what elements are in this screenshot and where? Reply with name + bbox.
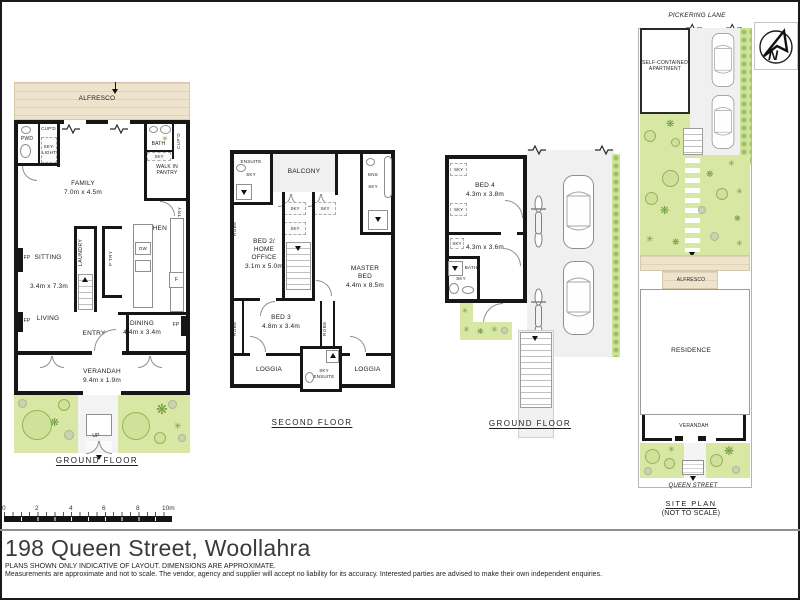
wall <box>242 301 244 355</box>
room-label-site-verandah: VERANDAH <box>652 423 736 429</box>
dishwasher-label: DW <box>135 246 151 252</box>
sky-label: SKY <box>451 276 471 282</box>
tree-icon <box>154 432 166 444</box>
room-label-verandah: VERANDAH <box>52 368 152 376</box>
plant-icon: ✳ <box>736 188 743 196</box>
wall <box>642 438 672 441</box>
wall <box>716 438 746 441</box>
shrub-icon <box>644 467 652 475</box>
toilet-icon <box>20 144 31 158</box>
scale-tick-10m: 10m <box>162 505 175 512</box>
tree-icon <box>22 410 52 440</box>
basin-icon <box>149 126 158 133</box>
scale-tick-8: 8 <box>136 505 140 512</box>
room-label-apartment: SELF-CONTAINED APARTMENT <box>641 60 689 73</box>
plant-icon: ❋ <box>50 418 59 429</box>
street-label-queen-street: QUEEN STREET <box>643 483 743 491</box>
scale-bar <box>4 516 172 522</box>
verandah-post <box>675 436 683 441</box>
property-address: 198 Queen Street, Woollahra <box>5 535 311 562</box>
wall <box>74 226 97 229</box>
tree-icon <box>664 458 675 469</box>
toilet-icon <box>160 125 171 134</box>
wall <box>144 198 190 201</box>
shower-drain-arrow <box>241 190 247 195</box>
floorplan-sheet: ALFRESCO PWD CUP'D SKY- LIGHT ✳ BATH SKY… <box>0 0 800 600</box>
room-dim-bed3: 4.8m x 3.4m <box>246 323 316 331</box>
room-label-sitting: SITTING <box>18 254 78 262</box>
room-label-bed4: BED 4 <box>449 182 521 190</box>
plant-icon: ❋ <box>734 215 741 223</box>
plant-icon: ❋ <box>156 402 168 416</box>
fridge-label: F <box>169 277 184 283</box>
plan-title-ground-floor-right: GROUND FLOOR <box>460 419 600 428</box>
wall <box>57 123 60 167</box>
room-label-residence: RESIDENCE <box>651 347 731 355</box>
compass-north-label: N <box>768 47 779 63</box>
plant-icon: ✳ <box>491 326 498 334</box>
room-dim-dining: 4.4m x 3.4m <box>112 329 172 337</box>
wall <box>360 232 395 235</box>
room-label-balcony: BALCONY <box>273 168 335 176</box>
tree-icon <box>671 138 680 147</box>
sky-box: SKY <box>450 163 467 176</box>
wall <box>233 202 273 205</box>
shower-drain-arrow <box>452 266 458 271</box>
room-label-alfresco: ALFRESCO <box>47 95 147 103</box>
toilet-icon <box>449 283 459 294</box>
wall <box>360 154 363 235</box>
divider-line <box>0 529 800 531</box>
plant-icon: ❋ <box>724 445 734 457</box>
break-line-icon <box>62 124 80 134</box>
room-label-master-bed: MASTER BED <box>333 265 397 281</box>
wall <box>102 295 122 298</box>
entry-arrow <box>690 476 696 481</box>
tree-icon <box>122 412 150 440</box>
room-dim-family: 7.0m x 4.5m <box>33 189 133 197</box>
sky-box: SKY <box>450 203 467 216</box>
plan-second-floor: BALCONY ENSUITE SKY ENS SKY SKY SKY SKY <box>230 150 398 435</box>
plant-icon: ✳ <box>646 235 654 244</box>
stairs <box>520 332 552 408</box>
shrub-icon <box>178 434 186 442</box>
tree-icon <box>716 188 728 200</box>
plant-icon: ✳ <box>736 240 743 248</box>
room-label-bed2: BED 2/ HOME OFFICE <box>232 238 296 262</box>
sky-label: SKY <box>290 226 299 231</box>
cooktop-icon <box>135 260 151 272</box>
tree-icon <box>710 454 723 467</box>
motorcycle-icon <box>530 195 547 248</box>
disclaimer-line-1: PLANS SHOWN ONLY INDICATIVE OF LAYOUT. D… <box>5 563 276 570</box>
wall-opening <box>501 232 517 235</box>
room-label-robe: ROBE <box>232 314 241 344</box>
tree-icon <box>645 192 658 205</box>
sky-label: SKY <box>454 207 463 212</box>
shrub-icon <box>18 399 27 408</box>
basin-icon <box>21 126 31 134</box>
stairs-down-arrow <box>532 336 538 341</box>
plant-icon: ❋ <box>706 170 714 179</box>
room-label-bath: BATH <box>463 265 479 271</box>
room-label-ptry-mid: P'TRY <box>108 240 117 276</box>
room-label-cupd-right: CUP'D <box>176 128 186 154</box>
tree-icon <box>58 399 70 411</box>
sky-label: SKY <box>154 154 163 159</box>
wall <box>335 154 338 195</box>
room-label-pwd: PWD <box>16 136 38 142</box>
break-line-icon <box>595 145 613 155</box>
shrub-icon <box>64 430 74 440</box>
basin-icon <box>236 164 246 172</box>
skylight-label: SKY- LIGHT <box>42 144 56 155</box>
compass-icon: N <box>755 23 797 69</box>
room-label-cupd: CUP'D <box>40 126 57 132</box>
plant-icon: ❋ <box>660 206 669 217</box>
room-label-loggia: LOGGIA <box>340 366 395 374</box>
shrub-icon <box>710 232 719 241</box>
room-dim-verandah: 9.4m x 1.9m <box>52 377 152 385</box>
plant-icon: ❋ <box>672 238 680 247</box>
bathtub-icon <box>384 156 392 198</box>
sky-label: SKY <box>361 184 385 190</box>
wall <box>172 123 174 159</box>
entry-marker-arrow <box>112 89 118 94</box>
site-plan: PICKERING LANE SELF-CONTAINED APARTMENT … <box>638 10 756 525</box>
room-label-ens: ENS <box>361 172 385 178</box>
wall <box>94 226 97 312</box>
wall <box>144 123 147 201</box>
car-icon <box>562 260 595 336</box>
scale-tick-2: 2 <box>35 505 39 512</box>
wall <box>102 226 122 229</box>
plan-title-ground-floor-left: GROUND FLOOR <box>27 456 167 465</box>
basin-icon <box>462 286 474 294</box>
fireplace-label: FP <box>169 322 183 328</box>
shrub-icon <box>698 206 706 214</box>
plant-icon: ✳ <box>668 446 675 454</box>
car-icon <box>711 94 735 150</box>
room-label-loggia: LOGGIA <box>238 366 300 374</box>
room-label-bed3: BED 3 <box>246 314 316 322</box>
car-icon <box>711 32 735 88</box>
room-label-robe: ROBE <box>322 314 332 344</box>
street-label-pickering-lane: PICKERING LANE <box>642 12 752 20</box>
shower-arrow <box>330 353 336 358</box>
stairs-up-arrow <box>82 277 88 282</box>
plan-ground-floor-left: ALFRESCO PWD CUP'D SKY- LIGHT ✳ BATH SKY… <box>14 82 190 474</box>
tree-icon <box>662 170 679 187</box>
plant-icon: ✳ <box>728 160 735 168</box>
hedge-strip <box>740 28 751 165</box>
plant-icon: ❋ <box>666 120 674 130</box>
verandah-post <box>698 436 706 441</box>
plant-icon: ✳ <box>463 326 470 334</box>
basin-icon <box>366 158 375 166</box>
entry-steps <box>682 460 704 475</box>
plant-icon: ✳ <box>462 308 468 315</box>
toilet-icon <box>305 372 314 383</box>
car-icon <box>562 174 595 250</box>
disclaimer-line-2: Measurements are approximate and not to … <box>5 571 602 578</box>
wall <box>270 154 273 205</box>
sky-label: SKY <box>454 167 463 172</box>
break-line-icon <box>528 145 546 155</box>
room-dim-master-bed: 4.4m x 8.5m <box>333 282 397 290</box>
break-line-icon <box>110 124 128 134</box>
up-label: UP <box>80 433 112 439</box>
wall <box>312 192 315 298</box>
wall <box>102 226 105 298</box>
room-label-walk-in-pantry: WALK IN PANTRY <box>145 164 189 177</box>
wall <box>74 226 77 312</box>
sky-label: SKY <box>320 206 329 211</box>
plan-title-site-plan: SITE PLAN <box>641 499 741 508</box>
room-label-family: FAMILY <box>33 180 133 188</box>
room-dim-sitting: 3.4m x 7.3m <box>18 283 80 291</box>
door-arc <box>483 303 503 323</box>
room-label-site-alfresco: ALFRESCO <box>651 277 731 283</box>
wall-opening <box>350 353 366 356</box>
wall <box>447 256 480 259</box>
room-label-laundry: LAUNDRY <box>78 232 88 272</box>
plan-title-second-floor: SECOND FLOOR <box>242 418 382 427</box>
room-label-dining: DINING <box>112 320 172 328</box>
sky-label: SKY <box>290 206 299 211</box>
room-label-living: LIVING <box>18 315 78 323</box>
room-dim-bed2: 3.1m x 5.0m <box>232 263 296 271</box>
tree-icon <box>645 449 660 464</box>
tree-icon <box>644 130 656 142</box>
wall-opening <box>250 353 266 356</box>
sky-box: SKY <box>284 222 306 235</box>
scale-tick-6: 6 <box>102 505 106 512</box>
plant-icon: ❋ <box>477 328 484 336</box>
sky-label: SKY <box>232 172 270 178</box>
plan-ground-floor-right: SKY BED 4 4.3m x 3.8m SKY SKY 4.3m x 3.6… <box>443 148 623 438</box>
shower-drain-arrow <box>375 217 381 222</box>
plan-subtitle-not-to-scale: (NOT TO SCALE) <box>641 510 741 519</box>
compass-box: N <box>754 22 798 70</box>
room-dim-bed4: 4.3m x 3.8m <box>449 191 521 199</box>
shrub-icon <box>501 327 508 334</box>
skylight-box: SKY- LIGHT <box>41 137 57 163</box>
site-alfresco-band <box>640 255 750 271</box>
stepping-stone-path <box>685 158 700 252</box>
sky-box: SKY <box>314 202 336 215</box>
scale-tick-0: 0 <box>2 505 6 512</box>
kitchen-bench <box>170 218 184 312</box>
plant-icon: ✳ <box>174 422 182 431</box>
hedge-strip <box>612 154 620 357</box>
shrub-icon <box>732 466 740 474</box>
shrub-icon <box>168 400 177 409</box>
room-label-bath: BATH <box>145 141 172 147</box>
garden-steps <box>683 128 703 155</box>
sky-box: SKY <box>147 152 171 161</box>
scale-tick-4: 4 <box>69 505 73 512</box>
sky-box: SKY <box>284 202 306 215</box>
